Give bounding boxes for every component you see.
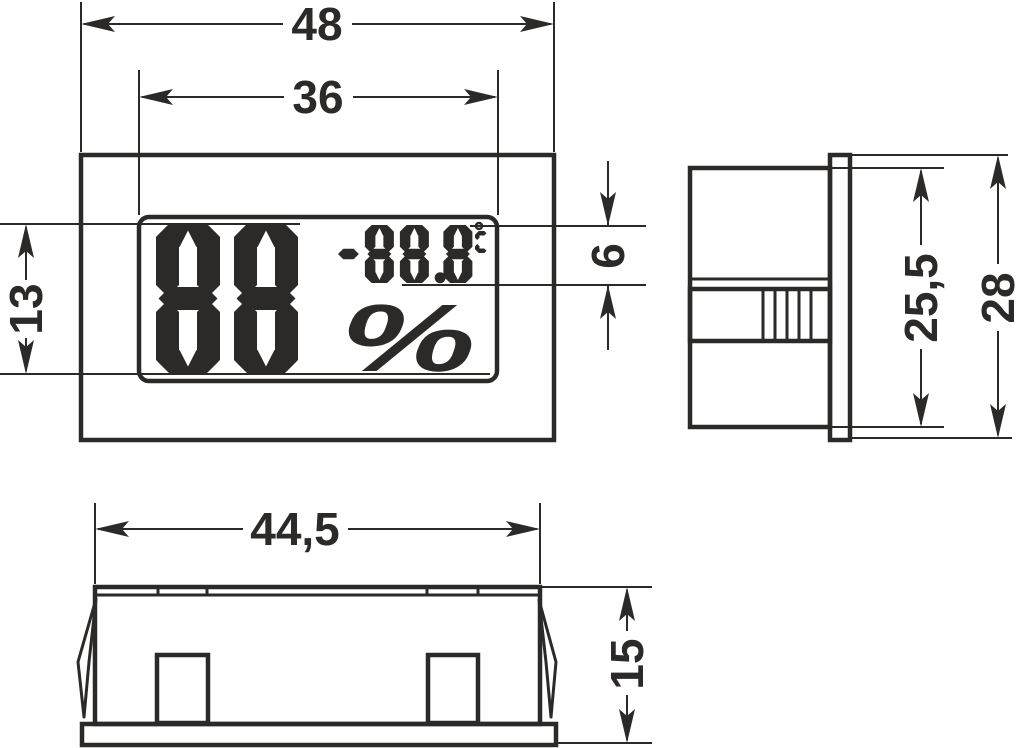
lcd-segment — [156, 301, 179, 372]
dim-label-28: 28 — [972, 272, 1024, 323]
celsius-letter — [475, 231, 487, 253]
lcd-segment — [383, 256, 394, 282]
lcd-segment — [275, 301, 298, 372]
humidity-digits — [156, 224, 298, 373]
lcd-segment — [462, 227, 473, 253]
lcd-segment — [443, 227, 454, 253]
percent-symbol: % — [341, 285, 476, 392]
lcd-segment — [338, 249, 359, 260]
lcd-segment — [197, 226, 220, 297]
lcd-segment — [418, 256, 429, 282]
bezel-strip — [82, 724, 556, 745]
lcd-segment — [400, 227, 411, 253]
front-flange — [830, 155, 850, 440]
lcd-segment — [400, 256, 411, 282]
dim-display-width: 36 — [139, 70, 498, 215]
front-view: % — [81, 155, 554, 440]
lcd-segment — [443, 256, 454, 282]
dim-label-25-5: 25,5 — [895, 253, 947, 343]
dim-label-36: 36 — [292, 71, 343, 123]
dim-body-width: 44,5 — [95, 503, 540, 584]
left-post — [157, 655, 208, 723]
dim-label-44-5: 44,5 — [250, 503, 340, 555]
lcd-segment — [234, 226, 257, 297]
dimension-drawing: % 48 36 13 6 — [0, 0, 1024, 748]
dim-label-15: 15 — [601, 638, 653, 689]
lcd-segment — [418, 227, 429, 253]
lcd-segment — [462, 256, 473, 282]
lcd-segment — [383, 227, 394, 253]
dim-label-13: 13 — [0, 283, 52, 334]
lcd-segment — [365, 256, 376, 282]
side-view — [690, 155, 850, 440]
body-outline — [690, 168, 830, 427]
lcd-segment — [156, 226, 179, 297]
clip-slot — [690, 289, 830, 341]
lcd-segment — [275, 226, 298, 297]
temperature-digits — [338, 225, 472, 283]
dim-label-6: 6 — [582, 243, 634, 269]
right-post — [428, 655, 478, 723]
lcd-segment — [197, 301, 220, 372]
technical-drawing-page: % 48 36 13 6 — [0, 0, 1024, 748]
lcd-segment — [365, 227, 376, 253]
bottom-view — [78, 587, 556, 745]
clip-ribs — [763, 290, 811, 340]
bezel-outline — [81, 155, 554, 440]
dim-label-48: 48 — [291, 0, 342, 50]
lcd-segment — [234, 301, 257, 372]
